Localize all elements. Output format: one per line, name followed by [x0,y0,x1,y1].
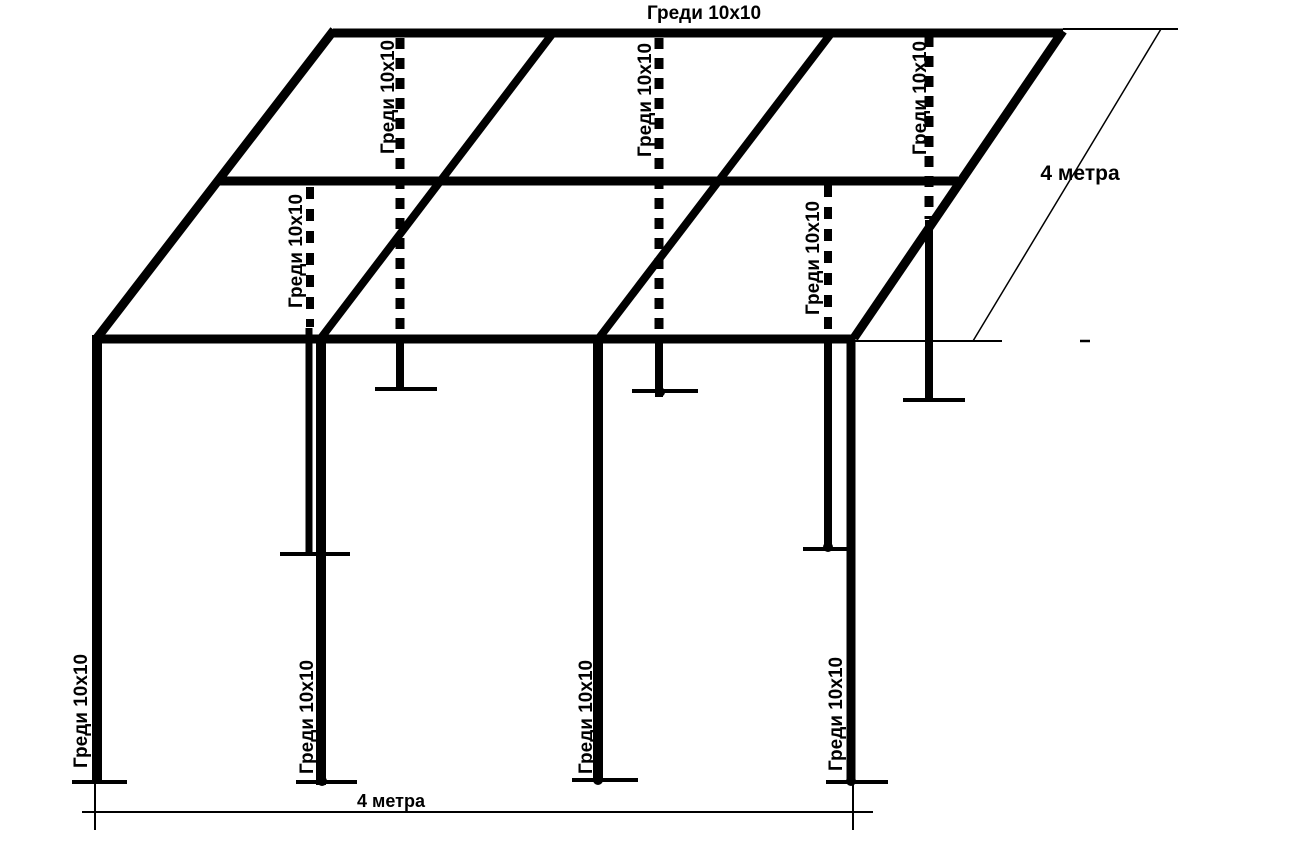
label-middle-post-right: Греди 10x10 [803,201,824,315]
title-rear-beam-label: Греди 10x10 [647,3,761,24]
dim-depth-diagonal [973,29,1161,341]
label-front-post-4: Греди 10x10 [826,657,847,771]
diagram-canvas: Греди 10x10 Греди 10x10 Греди 10x10 Гред… [0,0,1315,844]
dimension-width-lines [82,781,873,830]
label-front-post-3: Греди 10x10 [576,660,597,774]
label-rear-post-center: Греди 10x10 [635,43,656,157]
base-dot [593,775,603,785]
dimension-width-label: 4 метра [357,791,426,811]
base-dot [317,776,327,786]
base-dot [846,776,856,786]
label-front-post-2: Греди 10x10 [297,660,318,774]
base-dot [655,387,665,397]
label-front-post-1: Греди 10x10 [71,654,92,768]
pergola-frame-diagram: Греди 10x10 Греди 10x10 Греди 10x10 Гред… [0,0,1315,844]
base-dot [823,542,833,552]
label-rear-post-left: Греди 10x10 [378,40,399,154]
dimension-depth-label: 4 метра [1040,162,1120,185]
label-rear-post-right: Греди 10x10 [910,41,931,155]
label-middle-post-left: Греди 10x10 [286,194,307,308]
